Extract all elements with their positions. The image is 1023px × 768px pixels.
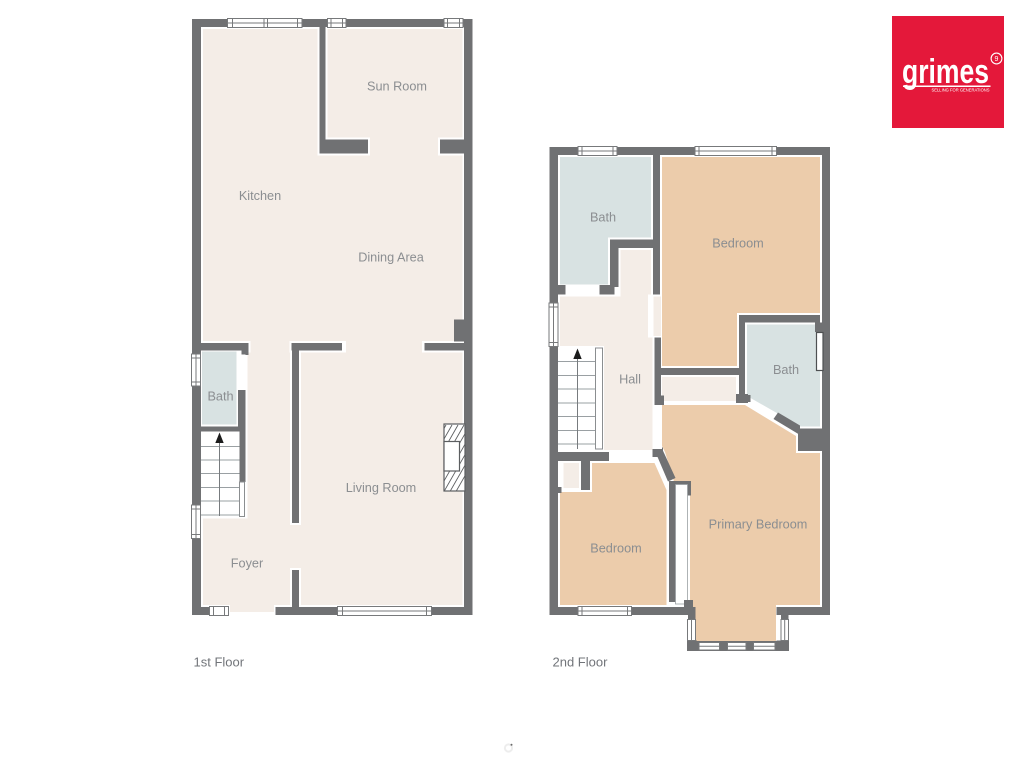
svg-text:Bath: Bath bbox=[773, 363, 799, 377]
svg-text:Kitchen: Kitchen bbox=[239, 189, 281, 203]
svg-text:Dining Area: Dining Area bbox=[358, 251, 425, 265]
svg-text:Hall: Hall bbox=[619, 373, 641, 387]
svg-text:Primary Bedroom: Primary Bedroom bbox=[709, 518, 808, 532]
svg-text:Bath: Bath bbox=[207, 390, 233, 404]
svg-text:grimes: grimes bbox=[902, 53, 989, 91]
svg-text:Living Room: Living Room bbox=[346, 481, 417, 495]
svg-text:2nd Floor: 2nd Floor bbox=[553, 655, 609, 670]
svg-text:1st Floor: 1st Floor bbox=[194, 655, 245, 670]
svg-text:SELLING FOR GENERATIONS: SELLING FOR GENERATIONS bbox=[932, 88, 990, 93]
svg-text:Bedroom: Bedroom bbox=[712, 237, 763, 251]
svg-text:9: 9 bbox=[995, 56, 999, 63]
svg-text:Sun Room: Sun Room bbox=[367, 80, 427, 94]
svg-text:Foyer: Foyer bbox=[231, 557, 264, 571]
svg-text:Bedroom: Bedroom bbox=[590, 542, 641, 556]
svg-text:Bath: Bath bbox=[590, 211, 616, 225]
